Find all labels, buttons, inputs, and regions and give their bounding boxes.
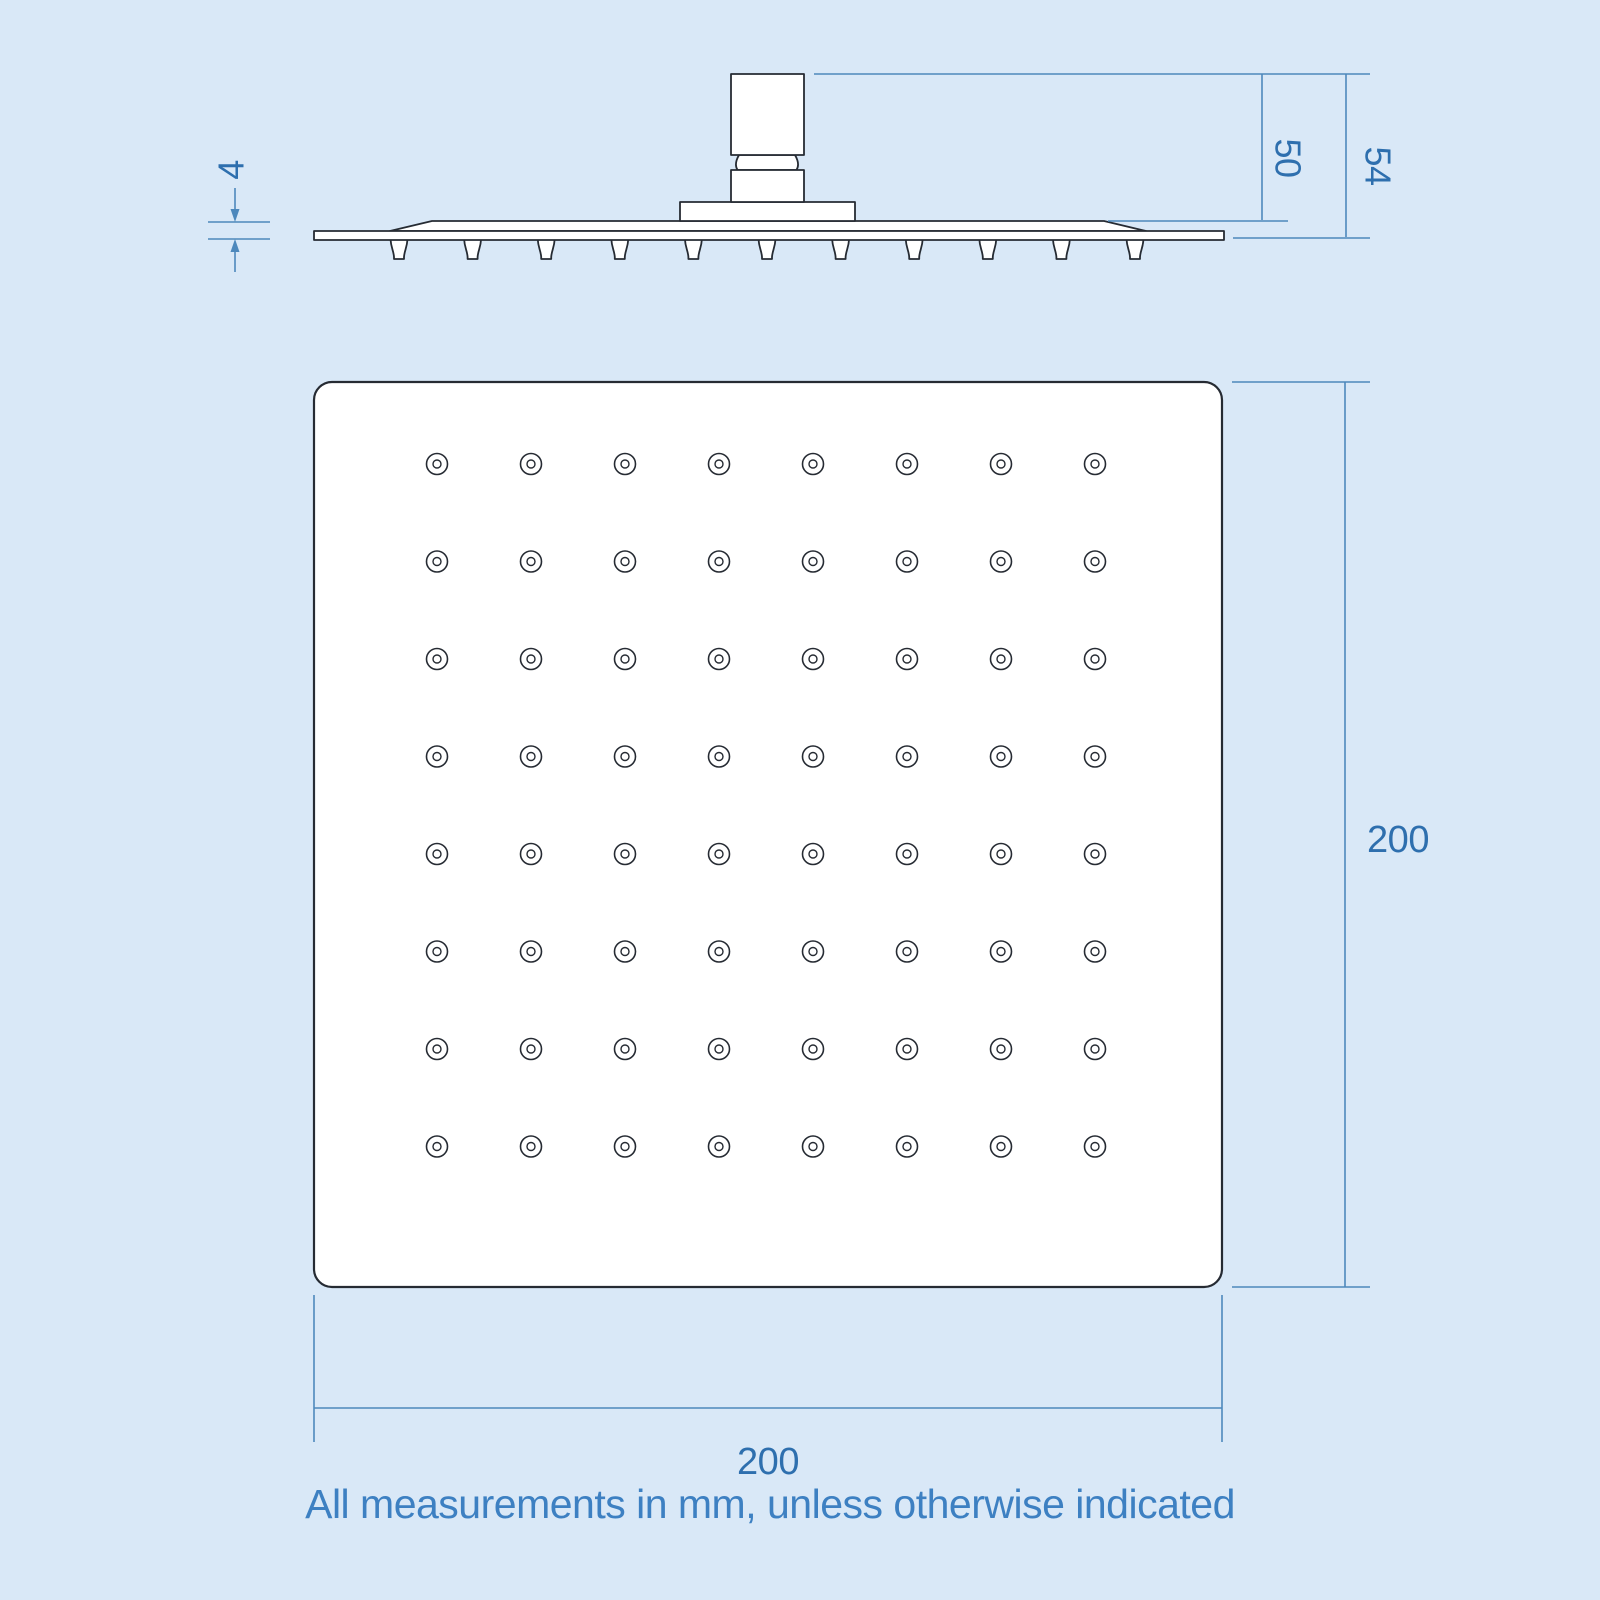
- dim-face-height: 200: [1232, 382, 1429, 1287]
- side-nozzle: [1127, 239, 1144, 259]
- dim-connector-depths: 50 54: [814, 74, 1399, 238]
- dim-connector-to-face-label: 50: [1268, 138, 1309, 177]
- side-nozzle: [685, 239, 702, 259]
- side-view: [314, 74, 1224, 259]
- side-nozzle: [538, 239, 555, 259]
- connector-block: [731, 170, 804, 202]
- measurement-note: All measurements in mm, unless otherwise…: [305, 1481, 1235, 1527]
- shower-head-technical-drawing: 4 50 54 200 200 All measurements in mm, …: [0, 0, 1600, 1600]
- side-nozzle: [832, 239, 849, 259]
- side-nozzle: [464, 239, 481, 259]
- dim-face-width: 200: [314, 1295, 1222, 1483]
- dim-overall-depth-label: 54: [1358, 146, 1399, 185]
- side-plate-slab: [314, 231, 1224, 240]
- connector-inlet-pipe: [731, 74, 804, 155]
- side-nozzle-row: [391, 239, 1144, 259]
- dim-face-height-label: 200: [1367, 819, 1429, 861]
- dim-plate-thickness-label: 4: [211, 160, 252, 180]
- side-plate-raised-face: [390, 221, 1146, 231]
- side-nozzle: [611, 239, 628, 259]
- connector-flange: [680, 202, 855, 221]
- side-nozzle: [1053, 239, 1070, 259]
- side-nozzle: [906, 239, 923, 259]
- dim-plate-thickness: 4: [208, 160, 270, 272]
- side-nozzle: [979, 239, 996, 259]
- side-nozzle: [391, 239, 408, 259]
- front-view: [314, 382, 1222, 1287]
- dim-face-width-label: 200: [737, 1441, 799, 1483]
- side-nozzle: [759, 239, 776, 259]
- connector-ball-joint: [736, 155, 798, 170]
